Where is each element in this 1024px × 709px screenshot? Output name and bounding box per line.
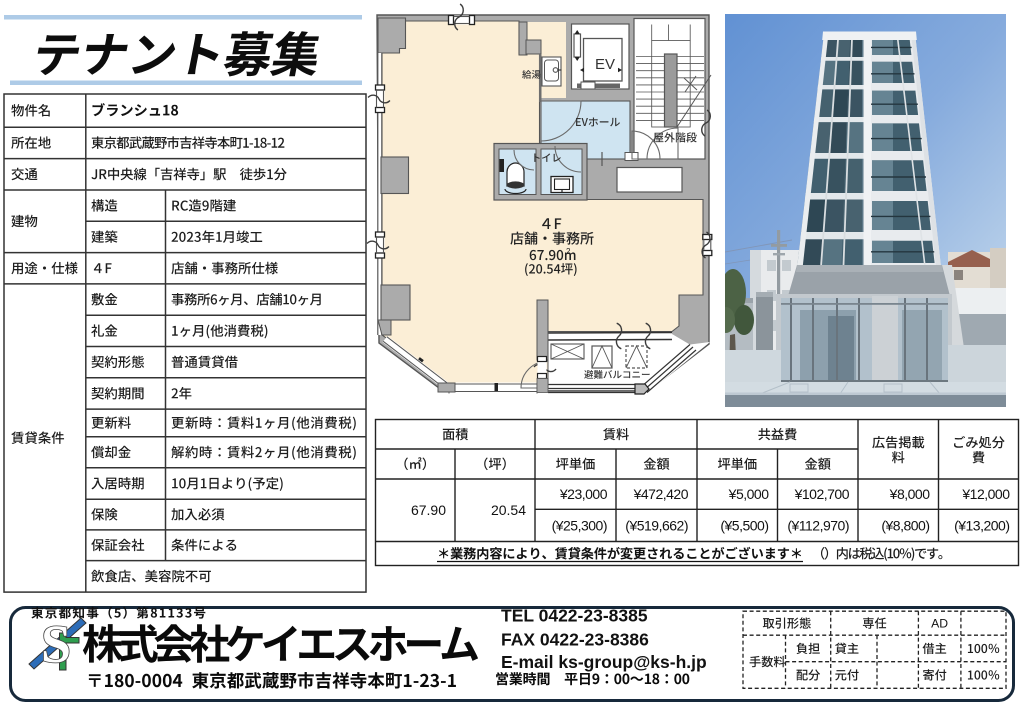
svg-text:FAX 0422-23-8386: FAX 0422-23-8386 bbox=[501, 630, 649, 650]
svg-text:¥5,000: ¥5,000 bbox=[728, 486, 770, 502]
svg-text:67.90: 67.90 bbox=[411, 502, 446, 518]
svg-text:(¥25,300): (¥25,300) bbox=[552, 517, 607, 533]
svg-text:EV: EV bbox=[595, 56, 615, 73]
svg-text:(¥519,662): (¥519,662) bbox=[625, 517, 688, 533]
svg-text:TEL 0422-23-8385: TEL 0422-23-8385 bbox=[501, 606, 648, 626]
svg-text:(¥5,500): (¥5,500) bbox=[720, 517, 768, 533]
svg-text:AD: AD bbox=[931, 617, 948, 631]
svg-text:¥472,420: ¥472,420 bbox=[633, 486, 689, 502]
svg-text:S: S bbox=[41, 614, 71, 674]
svg-text:2: 2 bbox=[566, 247, 571, 256]
svg-text:¥12,000: ¥12,000 bbox=[961, 486, 1010, 502]
svg-text:¥8,000: ¥8,000 bbox=[889, 486, 931, 502]
svg-text:(¥8,800): (¥8,800) bbox=[881, 517, 929, 533]
svg-text:(¥13,200): (¥13,200) bbox=[954, 517, 1009, 533]
svg-text:¥23,000: ¥23,000 bbox=[559, 486, 608, 502]
svg-text:20.54: 20.54 bbox=[491, 502, 526, 518]
svg-text:¥102,700: ¥102,700 bbox=[794, 486, 850, 502]
svg-text:(¥112,970): (¥112,970) bbox=[787, 517, 849, 533]
svg-text:E-mail ks-group@ks-h.jp: E-mail ks-group@ks-h.jp bbox=[501, 652, 707, 672]
